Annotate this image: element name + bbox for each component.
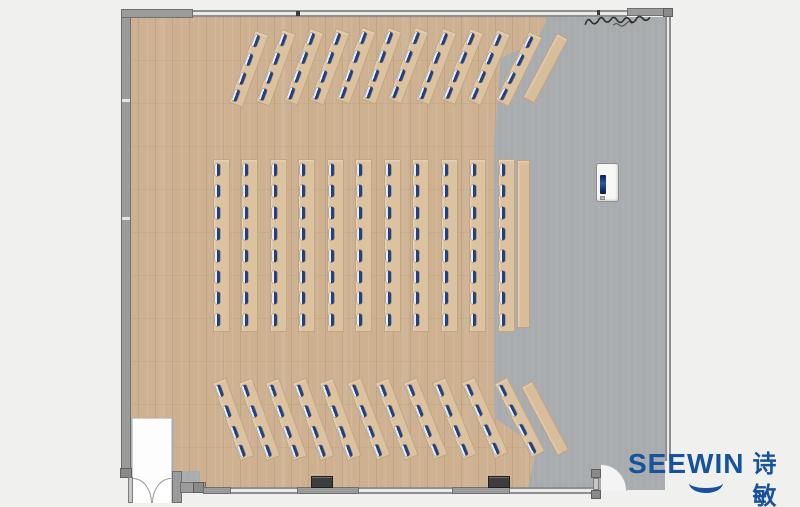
seat-marker — [287, 87, 296, 100]
seat-marker — [268, 384, 277, 397]
desk-strip — [241, 159, 258, 332]
seat-marker — [471, 164, 476, 176]
seat-marker — [272, 250, 277, 262]
seat-marker — [386, 271, 391, 283]
seat-marker — [243, 271, 248, 283]
seat-marker — [358, 31, 367, 44]
door-jamb — [593, 478, 599, 490]
seat-marker — [350, 384, 359, 397]
seat-marker — [329, 164, 334, 176]
seat-marker — [300, 250, 305, 262]
seat-marker — [500, 185, 505, 197]
seat-marker — [386, 405, 395, 418]
seat-marker — [414, 228, 419, 240]
desk-strip — [213, 159, 230, 332]
seat-marker — [411, 31, 420, 44]
seat-marker — [243, 250, 248, 262]
seat-marker — [432, 51, 441, 64]
seat-marker — [471, 250, 476, 262]
seat-marker — [451, 70, 460, 83]
seat-marker — [386, 185, 391, 197]
seat-marker — [215, 292, 220, 304]
seat-marker — [500, 292, 505, 304]
seat-marker — [259, 88, 268, 101]
seat-marker — [272, 314, 277, 326]
seat-marker — [300, 185, 305, 197]
seat-marker — [300, 51, 309, 64]
seat-marker — [498, 88, 508, 101]
seat-marker — [306, 32, 315, 45]
seat-marker — [443, 228, 448, 240]
seat-marker — [329, 228, 334, 240]
desk-strip — [498, 159, 515, 332]
seat-marker — [276, 405, 285, 418]
seat-marker — [329, 314, 334, 326]
seat-marker — [464, 384, 473, 397]
wall-top-left — [121, 9, 193, 18]
seat-marker — [435, 384, 444, 397]
seat-marker — [300, 271, 305, 283]
seat-marker — [243, 292, 248, 304]
seat-marker — [329, 292, 334, 304]
window-wall-right — [665, 17, 671, 461]
seat-marker — [471, 207, 476, 219]
seat-marker — [243, 228, 248, 240]
seat-marker — [415, 404, 424, 417]
seat-marker — [245, 53, 254, 66]
seat-marker — [477, 70, 486, 83]
seat-marker — [215, 185, 220, 197]
seat-marker — [319, 70, 328, 83]
seat-marker — [386, 292, 391, 304]
seat-marker — [232, 89, 241, 102]
seat-marker — [482, 424, 491, 437]
seat-marker — [404, 50, 413, 63]
seat-marker — [430, 443, 439, 456]
seat-marker — [473, 404, 482, 417]
brand-wordmark: SEEWIN — [628, 449, 744, 479]
seat-marker — [238, 72, 247, 85]
seat-marker — [263, 445, 272, 458]
seat-marker — [339, 86, 348, 99]
seat-marker — [329, 271, 334, 283]
desk-strip — [469, 159, 486, 332]
seat-marker — [425, 70, 434, 83]
seat-marker — [300, 292, 305, 304]
seat-marker — [471, 228, 476, 240]
desk-strip — [298, 159, 315, 332]
seat-marker — [386, 207, 391, 219]
seat-marker — [357, 250, 362, 262]
window-wall-bottom — [203, 487, 593, 494]
wall-segment-bottom — [297, 487, 359, 494]
seat-marker — [215, 384, 224, 397]
seat-marker — [470, 87, 479, 100]
seat-marker — [243, 314, 248, 326]
seat-marker — [471, 292, 476, 304]
seat-marker — [265, 71, 274, 84]
seat-marker — [300, 164, 305, 176]
seat-marker — [506, 71, 516, 84]
seat-marker — [471, 271, 476, 283]
seat-marker — [283, 426, 292, 439]
seat-marker — [358, 405, 367, 418]
seat-marker — [366, 425, 375, 438]
seat-marker — [414, 207, 419, 219]
seat-marker — [357, 314, 362, 326]
seat-marker — [414, 314, 419, 326]
seat-marker — [444, 404, 453, 417]
seat-marker — [251, 34, 260, 47]
wall-joint-notch — [122, 99, 130, 102]
side-table — [517, 160, 530, 328]
seat-marker — [329, 185, 334, 197]
seat-marker — [290, 445, 299, 458]
door-jamb-cap — [591, 490, 601, 499]
seat-marker — [322, 384, 331, 397]
seat-marker — [223, 405, 232, 418]
seat-marker — [414, 185, 419, 197]
seat-marker — [414, 250, 419, 262]
seat-marker — [272, 207, 277, 219]
seat-marker — [357, 271, 362, 283]
seat-marker — [466, 32, 475, 45]
seat-marker — [471, 185, 476, 197]
wall-pier — [311, 476, 333, 488]
desk-strip — [412, 159, 429, 332]
seat-marker — [500, 207, 505, 219]
seat-marker — [272, 228, 277, 240]
seat-marker — [452, 425, 461, 438]
seat-marker — [485, 52, 494, 65]
seat-marker — [215, 207, 220, 219]
seat-marker — [500, 228, 505, 240]
seat-marker — [337, 426, 346, 439]
seat-marker — [272, 271, 277, 283]
wall-segment-bottom — [203, 487, 231, 494]
wall-corner-top-right — [663, 8, 673, 17]
seat-marker — [215, 271, 220, 283]
seat-marker — [518, 424, 528, 437]
seat-marker — [500, 314, 505, 326]
seat-marker — [365, 86, 374, 99]
seat-marker — [272, 52, 281, 65]
seat-marker — [243, 164, 248, 176]
seat-marker — [357, 292, 362, 304]
door-jamb-cap — [591, 469, 601, 478]
seat-marker — [272, 292, 277, 304]
seat-marker — [215, 250, 220, 262]
seat-marker — [378, 50, 387, 63]
seat-marker — [386, 250, 391, 262]
handwriting-scribble-icon — [583, 9, 654, 31]
logo-smile-arc — [689, 478, 723, 493]
seat-marker — [345, 69, 354, 82]
seat-marker — [272, 164, 277, 176]
seat-marker — [256, 426, 265, 439]
seat-marker — [443, 164, 448, 176]
desks-layer — [0, 0, 800, 507]
seat-marker — [329, 207, 334, 219]
seat-marker — [444, 86, 453, 99]
seat-marker — [371, 69, 380, 82]
seat-marker — [237, 445, 246, 458]
seat-marker — [352, 50, 361, 63]
seat-marker — [293, 70, 302, 83]
seat-marker — [317, 445, 326, 458]
brand-wordmark-chinese: 诗敏 — [752, 449, 800, 507]
seat-marker — [443, 250, 448, 262]
podium-pad — [600, 196, 605, 200]
seat-marker — [414, 292, 419, 304]
seat-marker — [243, 207, 248, 219]
seat-marker — [458, 51, 467, 64]
wall-left — [121, 17, 131, 470]
seat-marker — [443, 271, 448, 283]
seat-marker — [357, 164, 362, 176]
window-wall-top — [193, 10, 627, 17]
seat-marker — [524, 35, 534, 48]
seat-marker — [386, 164, 391, 176]
seat-marker — [357, 228, 362, 240]
seat-marker — [278, 33, 287, 46]
seat-marker — [439, 32, 448, 45]
seat-marker — [329, 250, 334, 262]
seat-marker — [386, 314, 391, 326]
seat-marker — [490, 442, 499, 455]
seat-marker — [373, 444, 382, 457]
wall-segment-bottom — [452, 487, 510, 494]
seat-marker — [215, 314, 220, 326]
wall-tick — [296, 11, 300, 16]
seat-marker — [249, 405, 258, 418]
floor-plan-canvas: SEEWIN 诗敏 — [0, 0, 800, 507]
seat-marker — [357, 185, 362, 197]
seat-marker — [310, 426, 319, 439]
seat-marker — [459, 443, 468, 456]
seat-marker — [300, 207, 305, 219]
door-jamb — [128, 477, 133, 503]
seat-marker — [300, 228, 305, 240]
desk-strip — [270, 159, 287, 332]
seat-marker — [443, 185, 448, 197]
podium-screen — [600, 175, 606, 194]
seat-marker — [215, 164, 220, 176]
seat-marker — [215, 228, 220, 240]
seat-marker — [493, 33, 502, 46]
seat-marker — [443, 207, 448, 219]
seat-marker — [443, 292, 448, 304]
seat-marker — [418, 87, 427, 100]
seat-marker — [515, 53, 525, 66]
wall-joint-notch — [122, 217, 130, 220]
seat-marker — [508, 404, 518, 417]
seat-marker — [390, 86, 399, 99]
seat-marker — [384, 31, 393, 44]
seat-marker — [313, 87, 322, 100]
seat-marker — [500, 250, 505, 262]
seat-marker — [243, 185, 248, 197]
seat-marker — [230, 426, 239, 439]
seat-marker — [406, 384, 415, 397]
seat-marker — [378, 384, 387, 397]
seat-marker — [498, 384, 508, 397]
seat-marker — [414, 164, 419, 176]
seat-marker — [394, 425, 403, 438]
seat-marker — [414, 271, 419, 283]
seat-marker — [295, 384, 304, 397]
seat-marker — [326, 51, 335, 64]
podium — [596, 163, 619, 202]
seat-marker — [241, 384, 250, 397]
brand-logo: SEEWIN 诗敏 — [628, 449, 800, 493]
desk-strip — [327, 159, 344, 332]
seat-marker — [332, 32, 341, 45]
seat-marker — [386, 228, 391, 240]
seat-marker — [401, 444, 410, 457]
seat-marker — [471, 314, 476, 326]
desk-strip — [355, 159, 372, 332]
seat-marker — [357, 207, 362, 219]
seat-marker — [500, 271, 505, 283]
wall-pier — [488, 476, 510, 488]
seat-marker — [397, 69, 406, 82]
desk-strip — [441, 159, 458, 332]
seat-marker — [443, 314, 448, 326]
seat-marker — [272, 185, 277, 197]
desk-strip — [384, 159, 401, 332]
seat-marker — [330, 405, 339, 418]
seat-marker — [423, 425, 432, 438]
seat-marker — [303, 405, 312, 418]
seat-marker — [527, 441, 537, 454]
seat-marker — [500, 164, 505, 176]
seat-marker — [300, 314, 305, 326]
seat-marker — [344, 445, 353, 458]
